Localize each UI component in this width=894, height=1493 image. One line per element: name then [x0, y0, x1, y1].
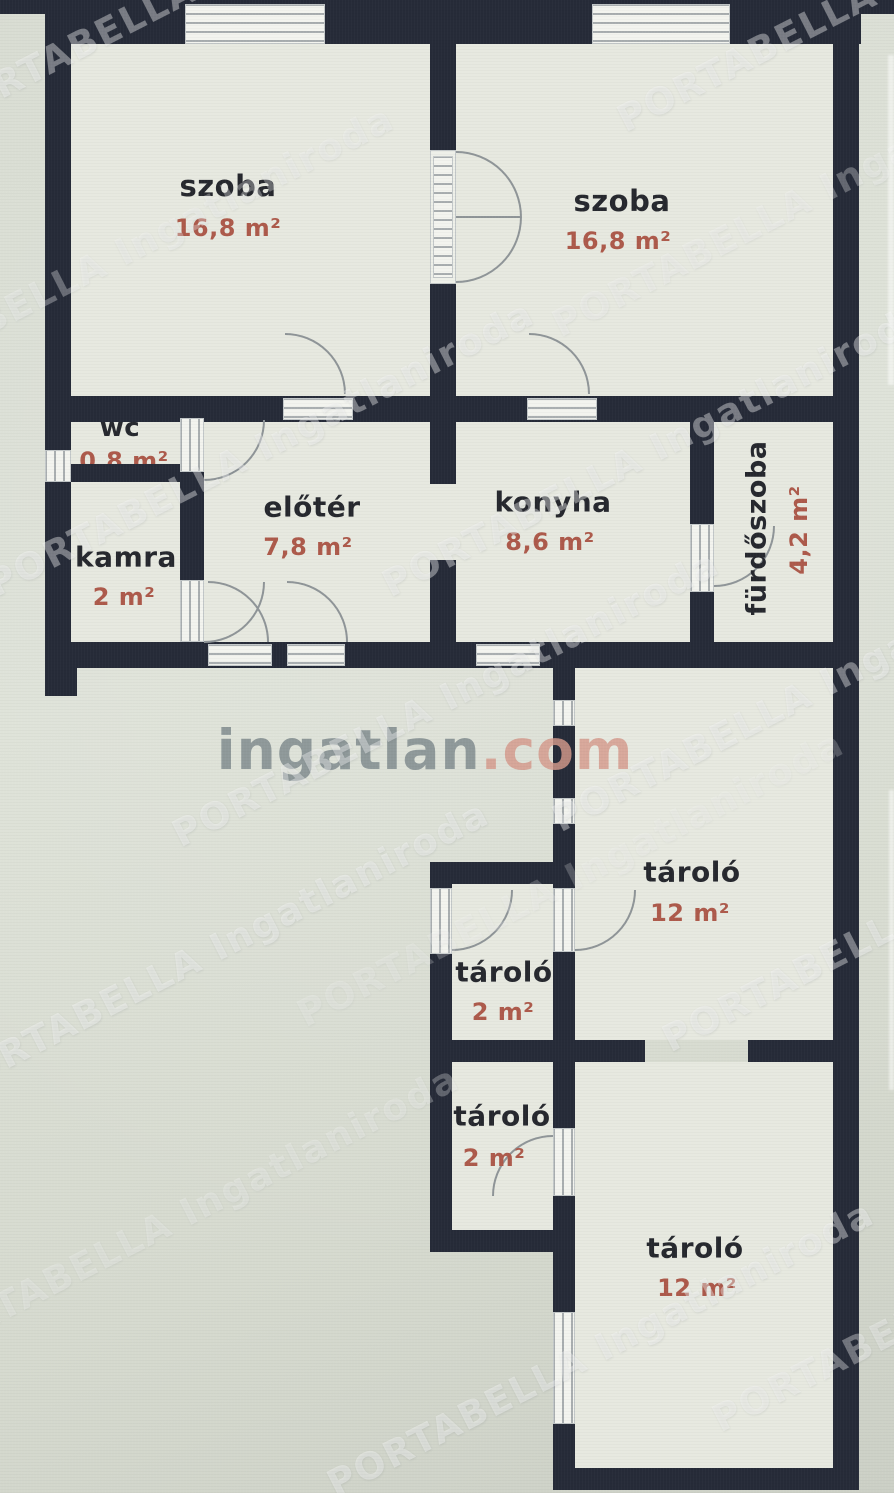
room-name-wc: wc	[100, 413, 140, 443]
room-area-tarolo-also-nagy: 12 m²	[657, 1274, 737, 1302]
wall-wc-bottom-bar	[71, 464, 180, 482]
room-area-kamra: 2 m²	[93, 583, 156, 611]
room-name-tarolo-felso-nagy: tároló	[643, 856, 740, 889]
room-name-szoba-1: szoba	[180, 169, 277, 203]
floorplan-photo: szoba 16,8 m² szoba 16,8 m² wc 0,8 m² ka…	[0, 0, 894, 1493]
room-name-furdoszoba: fürdőszoba	[742, 440, 773, 615]
door-swing-arcs	[0, 0, 894, 1493]
room-area-tarolo-also-kis: 2 m²	[463, 1144, 526, 1172]
door-arc	[529, 334, 589, 394]
door-arc	[285, 334, 345, 394]
room-name-eloter: előtér	[263, 491, 360, 524]
room-name-tarolo-also-kis: tároló	[453, 1100, 550, 1133]
room-area-tarolo-felso-kis: 2 m²	[472, 998, 535, 1026]
room-area-eloter: 7,8 m²	[263, 533, 352, 561]
door-arc	[204, 420, 264, 480]
door-arc	[287, 582, 347, 642]
room-name-konyha: konyha	[494, 486, 611, 519]
room-area-furdoszoba: 4,2 m²	[785, 485, 813, 574]
room-name-tarolo-also-nagy: tároló	[646, 1232, 743, 1265]
room-name-tarolo-felso-kis: tároló	[455, 956, 552, 989]
door-arc	[204, 582, 264, 642]
room-area-tarolo-felso-nagy: 12 m²	[650, 899, 730, 927]
room-name-szoba-2: szoba	[574, 184, 671, 218]
room-area-konyha: 8,6 m²	[505, 528, 594, 556]
room-area-szoba-1: 16,8 m²	[175, 214, 282, 242]
door-arc	[208, 582, 268, 642]
door-arc	[452, 890, 512, 950]
door-arc	[575, 890, 635, 950]
room-area-szoba-2: 16,8 m²	[565, 227, 672, 255]
room-name-kamra: kamra	[75, 541, 177, 574]
